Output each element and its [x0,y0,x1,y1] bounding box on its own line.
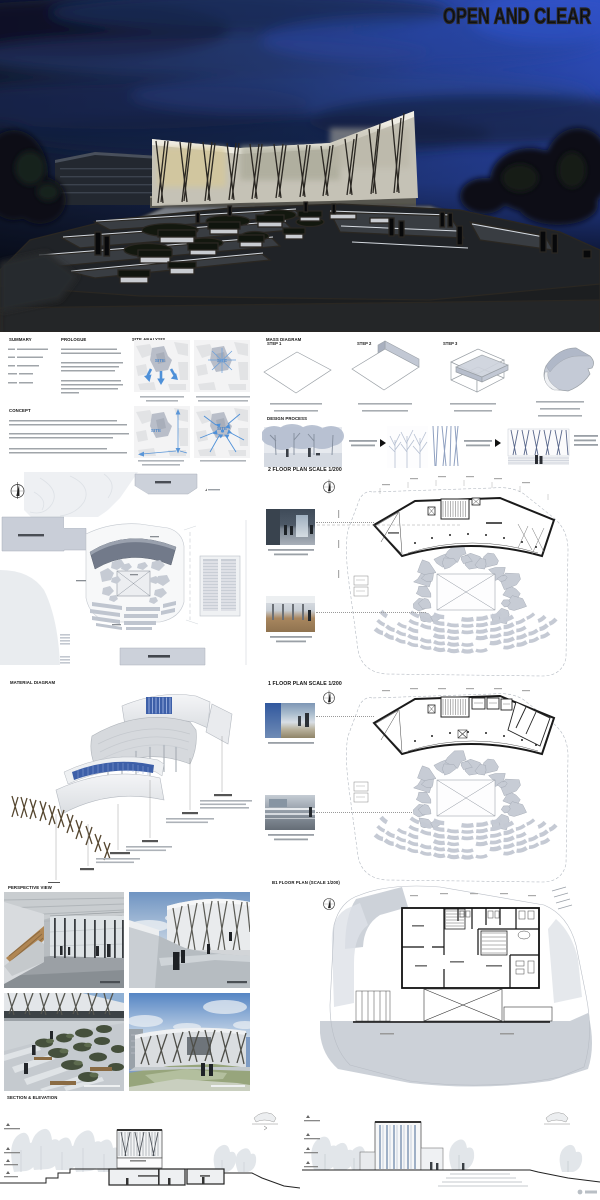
svg-text:STEP 3: STEP 3 [443,341,458,346]
svg-text:STEP 1: STEP 1 [267,341,282,346]
svg-text:STEP 2: STEP 2 [357,341,372,346]
svg-text:SITE: SITE [155,358,165,363]
svg-text:SITE: SITE [151,428,161,433]
svg-text:OPEN AND CLEAR: OPEN AND CLEAR [443,4,591,29]
